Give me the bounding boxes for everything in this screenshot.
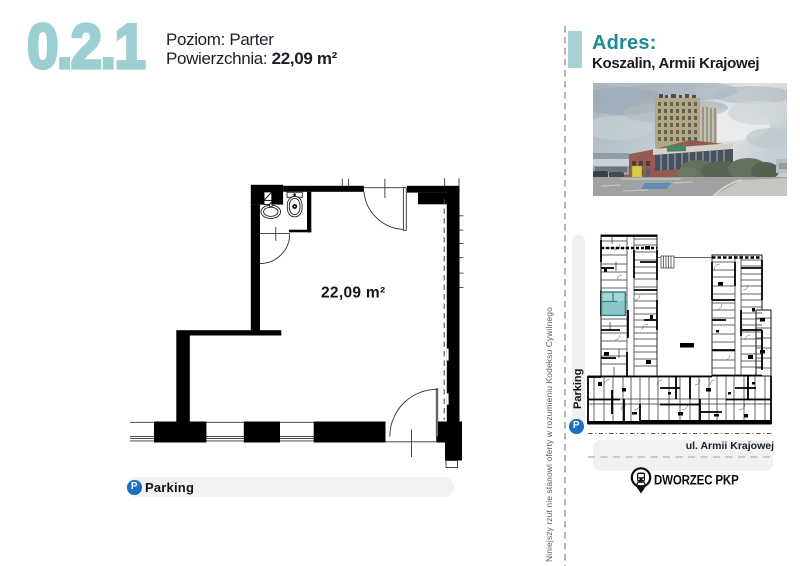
svg-text:22,09 m²: 22,09 m² xyxy=(321,285,385,302)
